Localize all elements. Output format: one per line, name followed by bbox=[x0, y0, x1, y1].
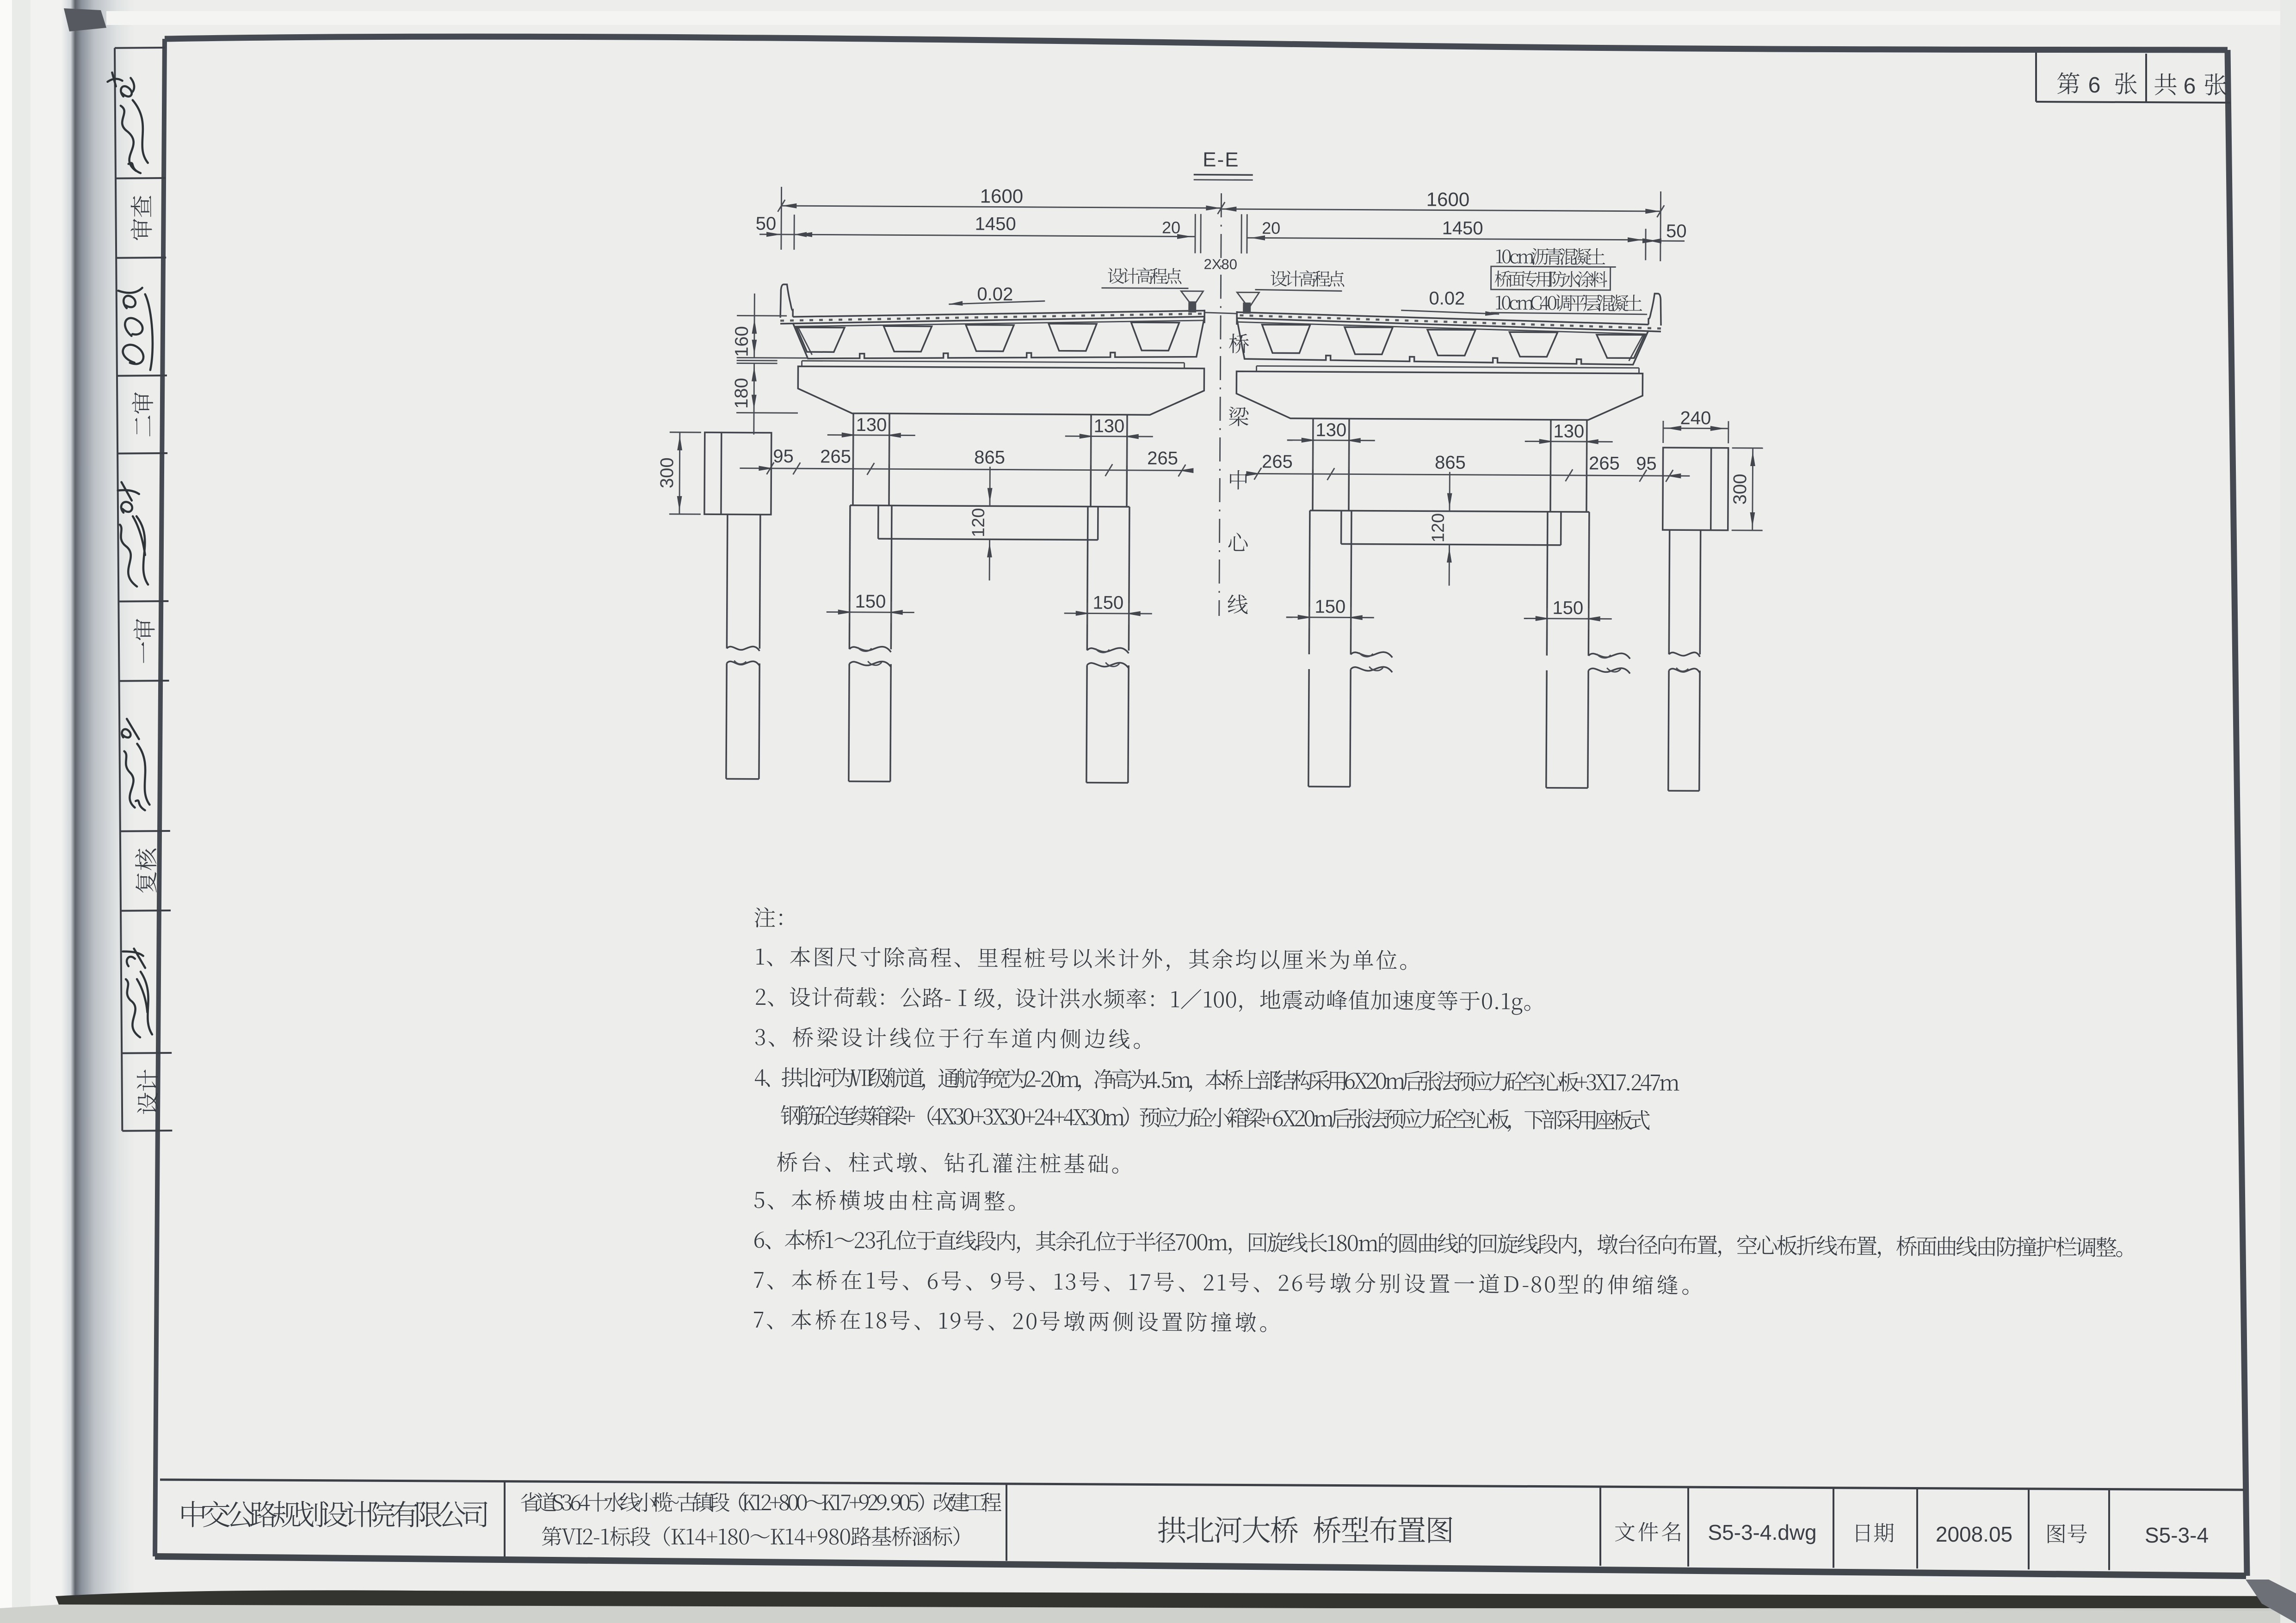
svg-text:130: 130 bbox=[1315, 420, 1346, 440]
svg-text:120: 120 bbox=[1429, 513, 1448, 543]
svg-text:E-E: E-E bbox=[1203, 148, 1240, 171]
svg-text:6: 6 bbox=[2088, 73, 2101, 98]
svg-text:150: 150 bbox=[855, 591, 886, 612]
svg-text:1450: 1450 bbox=[1442, 218, 1483, 238]
svg-text:95: 95 bbox=[773, 446, 794, 467]
svg-text:50: 50 bbox=[756, 214, 777, 234]
svg-text:865: 865 bbox=[1435, 452, 1466, 473]
svg-text:130: 130 bbox=[856, 415, 887, 435]
svg-text:130: 130 bbox=[1093, 416, 1124, 436]
svg-text:6: 6 bbox=[2184, 74, 2196, 98]
svg-text:265: 265 bbox=[1147, 448, 1178, 468]
svg-text:240: 240 bbox=[1680, 408, 1711, 428]
svg-text:300: 300 bbox=[657, 457, 677, 488]
svg-text:180: 180 bbox=[731, 378, 752, 409]
svg-text:120: 120 bbox=[969, 508, 988, 537]
svg-text:1600: 1600 bbox=[980, 185, 1024, 207]
svg-text:1600: 1600 bbox=[1426, 188, 1470, 210]
svg-text:S5-3-4: S5-3-4 bbox=[2145, 1523, 2209, 1547]
svg-text:150: 150 bbox=[1315, 596, 1346, 617]
svg-text:150: 150 bbox=[1552, 598, 1583, 618]
svg-text:265: 265 bbox=[1589, 453, 1620, 473]
svg-text:95: 95 bbox=[1636, 454, 1657, 474]
svg-text:265: 265 bbox=[1262, 451, 1293, 472]
svg-text:20: 20 bbox=[1162, 218, 1180, 237]
svg-text:265: 265 bbox=[820, 446, 851, 467]
svg-text:2008.05: 2008.05 bbox=[1936, 1522, 2012, 1546]
svg-text:130: 130 bbox=[1553, 421, 1584, 442]
svg-text:300: 300 bbox=[1730, 473, 1750, 504]
svg-text:S5-3-4.dwg: S5-3-4.dwg bbox=[1708, 1520, 1816, 1544]
svg-text:0.02: 0.02 bbox=[1429, 288, 1465, 308]
svg-text:160: 160 bbox=[732, 326, 752, 357]
svg-text:50: 50 bbox=[1666, 221, 1687, 241]
svg-text:20: 20 bbox=[1262, 218, 1280, 237]
svg-text:865: 865 bbox=[974, 447, 1005, 467]
svg-text:1450: 1450 bbox=[975, 214, 1016, 234]
svg-text:150: 150 bbox=[1092, 593, 1123, 613]
svg-text:2X80: 2X80 bbox=[1204, 256, 1237, 272]
svg-text:0.02: 0.02 bbox=[977, 284, 1013, 304]
